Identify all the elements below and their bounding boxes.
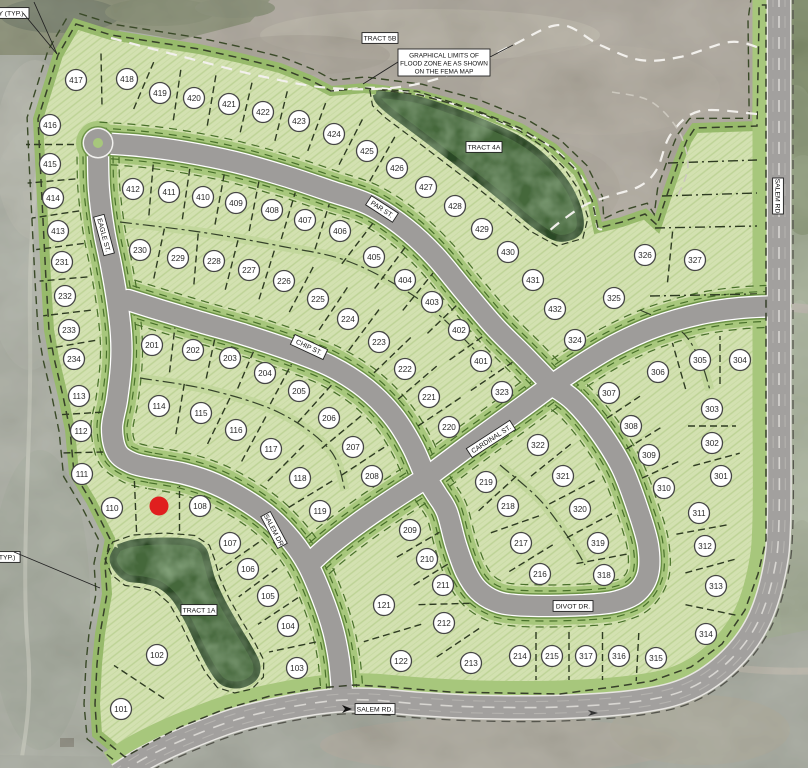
svg-text:117: 117 (264, 445, 277, 454)
svg-text:323: 323 (495, 388, 509, 397)
svg-text:410: 410 (196, 193, 210, 202)
svg-text:231: 231 (55, 258, 69, 267)
svg-text:TRACT 4A: TRACT 4A (468, 144, 501, 151)
svg-text:219: 219 (479, 478, 493, 487)
svg-text:325: 325 (607, 294, 621, 303)
svg-text:230: 230 (133, 246, 147, 255)
svg-text:229: 229 (171, 254, 185, 263)
svg-text:317: 317 (579, 652, 593, 661)
svg-text:114: 114 (152, 402, 165, 411)
svg-text:111: 111 (76, 470, 89, 479)
svg-text:218: 218 (501, 502, 515, 511)
svg-text:402: 402 (452, 326, 466, 335)
svg-text:224: 224 (341, 315, 355, 324)
svg-text:TRACT 1A: TRACT 1A (183, 607, 216, 614)
svg-text:322: 322 (531, 441, 545, 450)
svg-text:212: 212 (437, 619, 451, 628)
svg-text:206: 206 (322, 414, 336, 423)
svg-text:106: 106 (241, 565, 255, 574)
svg-text:FLOOD ZONE AE AS SHOWN: FLOOD ZONE AE AS SHOWN (400, 61, 488, 68)
svg-text:202: 202 (186, 346, 200, 355)
svg-text:211: 211 (436, 581, 449, 590)
svg-text:232: 232 (58, 292, 72, 301)
svg-text:404: 404 (398, 276, 412, 285)
svg-text:118: 118 (293, 474, 306, 483)
svg-text:234: 234 (67, 355, 81, 364)
svg-text:311: 311 (692, 509, 705, 518)
svg-text:115: 115 (194, 409, 207, 418)
svg-text:207: 207 (346, 443, 360, 452)
svg-text:215: 215 (545, 652, 559, 661)
svg-text:201: 201 (145, 341, 159, 350)
svg-text:424: 424 (327, 130, 341, 139)
svg-text:425: 425 (360, 147, 374, 156)
svg-text:223: 223 (372, 338, 386, 347)
svg-text:226: 226 (277, 277, 291, 286)
svg-text:301: 301 (714, 472, 728, 481)
svg-text:318: 318 (597, 571, 611, 580)
svg-text:320: 320 (573, 505, 587, 514)
svg-text:233: 233 (62, 326, 76, 335)
svg-text:116: 116 (229, 426, 242, 435)
svg-text:(TYP.): (TYP.) (0, 554, 15, 561)
svg-text:302: 302 (705, 439, 719, 448)
svg-text:SALEM RD: SALEM RD (774, 179, 781, 214)
svg-text:113: 113 (72, 392, 85, 401)
svg-text:119: 119 (313, 507, 326, 516)
svg-text:419: 419 (153, 89, 167, 98)
svg-text:326: 326 (638, 251, 652, 260)
svg-text:308: 308 (624, 422, 638, 431)
svg-text:216: 216 (533, 570, 547, 579)
svg-text:304: 304 (733, 356, 747, 365)
svg-text:203: 203 (223, 354, 237, 363)
svg-text:305: 305 (693, 356, 707, 365)
svg-text:315: 315 (649, 654, 663, 663)
svg-text:210: 210 (420, 555, 434, 564)
svg-text:108: 108 (193, 502, 207, 511)
svg-text:312: 312 (698, 542, 712, 551)
svg-text:427: 427 (419, 183, 433, 192)
svg-text:418: 418 (120, 75, 134, 84)
svg-text:225: 225 (311, 295, 325, 304)
svg-text:414: 414 (46, 194, 60, 203)
svg-text:428: 428 (448, 202, 462, 211)
svg-text:417: 417 (69, 76, 83, 85)
svg-text:303: 303 (705, 405, 719, 414)
svg-text:209: 209 (403, 526, 417, 535)
svg-text:122: 122 (394, 657, 408, 666)
svg-text:306: 306 (651, 368, 665, 377)
svg-text:205: 205 (292, 387, 306, 396)
svg-text:407: 407 (298, 216, 312, 225)
svg-text:TRACT 5B: TRACT 5B (364, 35, 397, 42)
svg-text:405: 405 (367, 253, 381, 262)
svg-text:420: 420 (187, 94, 201, 103)
svg-text:324: 324 (568, 336, 582, 345)
svg-text:228: 228 (207, 257, 221, 266)
svg-text:SALEM RD.: SALEM RD. (357, 706, 394, 713)
svg-text:112: 112 (74, 427, 87, 436)
svg-text:213: 213 (464, 659, 478, 668)
svg-text:423: 423 (292, 117, 306, 126)
svg-text:321: 321 (556, 472, 570, 481)
svg-text:105: 105 (261, 592, 275, 601)
svg-text:GRAPHICAL LIMITS OF: GRAPHICAL LIMITS OF (409, 53, 479, 60)
svg-text:217: 217 (514, 539, 528, 548)
svg-text:104: 104 (281, 622, 295, 631)
svg-text:DIVOT DR.: DIVOT DR. (556, 603, 590, 610)
svg-text:406: 406 (333, 227, 347, 236)
svg-text:426: 426 (390, 164, 404, 173)
svg-text:214: 214 (513, 652, 527, 661)
svg-text:412: 412 (126, 185, 140, 194)
svg-text:221: 221 (422, 393, 436, 402)
svg-text:327: 327 (688, 256, 702, 265)
svg-text:220: 220 (442, 423, 456, 432)
svg-text:204: 204 (258, 369, 272, 378)
svg-text:107: 107 (223, 539, 237, 548)
svg-text:421: 421 (222, 100, 236, 109)
svg-text:403: 403 (425, 298, 439, 307)
svg-text:121: 121 (377, 601, 391, 610)
svg-text:101: 101 (114, 705, 128, 714)
svg-text:307: 307 (602, 389, 616, 398)
svg-text:ON THE FEMA MAP: ON THE FEMA MAP (415, 69, 474, 76)
svg-text:431: 431 (526, 276, 540, 285)
svg-text:309: 309 (642, 451, 656, 460)
svg-text:416: 416 (43, 121, 57, 130)
svg-text:227: 227 (242, 266, 256, 275)
svg-text:110: 110 (105, 504, 118, 513)
svg-text:422: 422 (256, 108, 270, 117)
svg-text:222: 222 (398, 365, 412, 374)
svg-text:Y (TYP.): Y (TYP.) (0, 10, 24, 17)
svg-text:314: 314 (699, 630, 713, 639)
svg-text:430: 430 (501, 248, 515, 257)
svg-text:432: 432 (548, 305, 562, 314)
svg-text:411: 411 (162, 188, 175, 197)
svg-text:415: 415 (43, 160, 57, 169)
svg-text:316: 316 (612, 652, 626, 661)
svg-text:103: 103 (290, 664, 304, 673)
svg-text:102: 102 (150, 651, 164, 660)
svg-text:429: 429 (475, 225, 489, 234)
svg-text:313: 313 (709, 582, 723, 591)
svg-text:401: 401 (474, 357, 488, 366)
svg-text:408: 408 (265, 206, 279, 215)
svg-text:310: 310 (657, 484, 671, 493)
svg-text:208: 208 (365, 472, 379, 481)
svg-text:413: 413 (51, 227, 65, 236)
svg-text:319: 319 (591, 539, 605, 548)
svg-text:409: 409 (229, 199, 243, 208)
